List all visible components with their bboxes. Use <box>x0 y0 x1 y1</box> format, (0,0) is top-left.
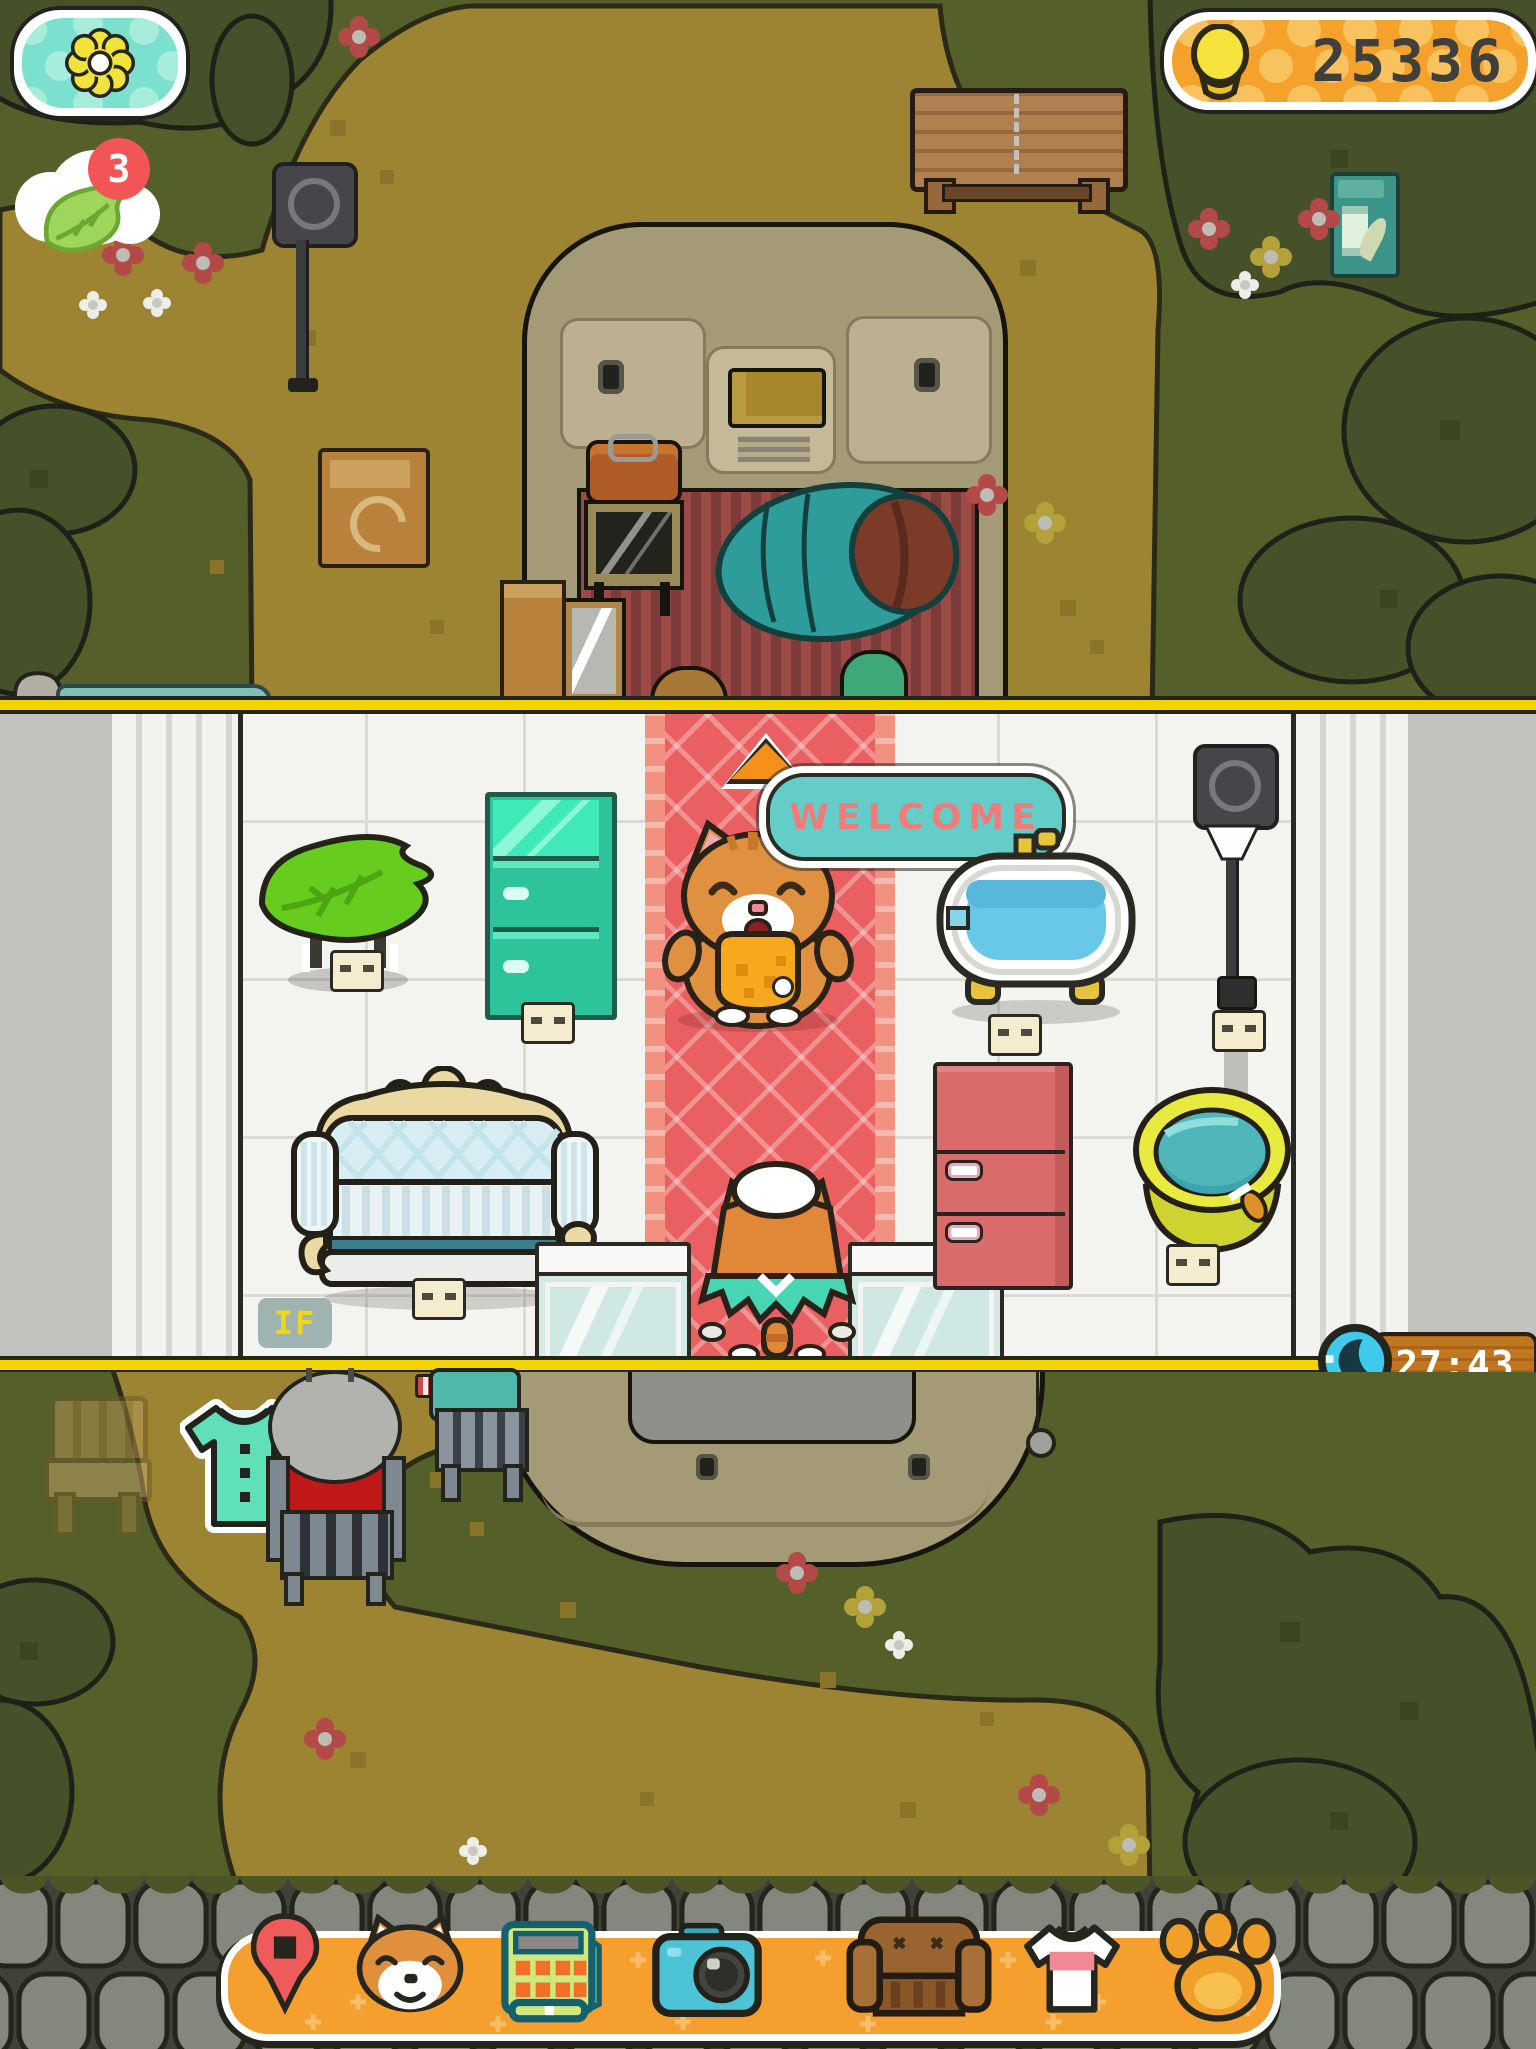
bobber-float <box>1026 1428 1056 1458</box>
chair-back <box>280 1510 394 1580</box>
divider-top <box>0 696 1536 716</box>
coin-icon <box>1186 24 1256 100</box>
shop-panel-left <box>112 714 238 1360</box>
paw-icon[interactable] <box>1150 1910 1286 2024</box>
chair-leg <box>366 1572 386 1606</box>
flower-red <box>352 30 366 44</box>
flower-yellow <box>1264 250 1278 264</box>
tshirt-icon[interactable] <box>1020 1920 1124 2017</box>
bench-crossbar <box>942 184 1092 202</box>
counter-glass <box>545 1282 681 1360</box>
ghost-chair <box>42 1396 147 1531</box>
flower-daisy <box>468 1846 478 1856</box>
cat-ear-mark <box>306 1368 312 1382</box>
camper-window <box>728 368 826 428</box>
flower-red <box>1202 222 1216 236</box>
fridge-handle <box>945 1222 983 1243</box>
flower-icon <box>62 24 138 102</box>
camper-panel-left <box>560 318 706 449</box>
leaf-notification[interactable]: 3 <box>14 132 174 252</box>
mirror-glass <box>572 608 616 694</box>
flower-button[interactable] <box>10 6 190 120</box>
camper-bumper <box>628 1372 916 1444</box>
flower-yellow <box>1038 516 1052 530</box>
fridge-top-door <box>493 800 599 861</box>
grass-fringe <box>0 1876 1536 1900</box>
notification-badge: 3 <box>88 138 150 200</box>
bench-seat <box>910 88 1128 192</box>
flower-red <box>980 488 994 502</box>
camera-icon[interactable] <box>652 1922 762 2017</box>
lamp-shade <box>1203 824 1261 862</box>
teal-fridge[interactable] <box>485 792 617 1020</box>
pink-fridge[interactable] <box>933 1062 1073 1290</box>
flower-daisy <box>894 1640 904 1650</box>
flower-daisy <box>88 300 98 310</box>
ghost-chair-leg <box>118 1492 140 1536</box>
chair-leg <box>441 1464 461 1502</box>
bathtub[interactable] <box>928 828 1144 1028</box>
cardboard-box-small[interactable] <box>500 580 566 704</box>
flower-red <box>318 1732 332 1746</box>
fishing-line <box>1036 1372 1039 1430</box>
flower-red <box>196 256 210 270</box>
price-tag <box>1166 1244 1220 1286</box>
lamp-post-head <box>272 162 358 248</box>
bubble-puff <box>772 976 794 998</box>
fridge-handle <box>503 960 529 973</box>
bench-seam <box>1014 94 1019 174</box>
shop-wall-left <box>0 714 112 1360</box>
glasses-icon <box>608 434 658 462</box>
sleeping-bag <box>708 462 988 662</box>
tv-screen <box>584 500 684 590</box>
shop-panel-right <box>1296 714 1408 1360</box>
shop-interior: WELCOME <box>0 714 1536 1360</box>
npc-cat-on-chair[interactable] <box>258 1368 408 1600</box>
flower-yellow <box>1122 1838 1136 1852</box>
shiba-icon[interactable] <box>350 1914 470 2015</box>
price-tag <box>1212 1010 1266 1052</box>
bottom-toolbar <box>222 1898 1284 2049</box>
tv-cart-leg <box>660 582 670 616</box>
cardboard-box[interactable] <box>318 448 430 568</box>
chair-leg <box>284 1572 304 1606</box>
flower-red <box>1032 1788 1046 1802</box>
chair-leg <box>503 1464 523 1502</box>
fridge-divider <box>933 1150 1065 1154</box>
box-swirl-icon <box>339 485 418 564</box>
cat-ear-mark <box>348 1368 354 1382</box>
doormat: IF <box>258 1298 332 1348</box>
price-tag <box>330 950 384 992</box>
glass-counter-left[interactable] <box>535 1242 691 1360</box>
shop-wall-right <box>1408 714 1536 1360</box>
fridge-drawer <box>493 932 599 1002</box>
counter-top <box>539 1246 687 1276</box>
coin-value: 25336 <box>1311 27 1506 95</box>
flower-daisy <box>1240 280 1250 290</box>
game-screen: 25336 3 413/100 <box>0 0 1536 2049</box>
fridge-drawer <box>493 861 599 932</box>
fridge-divider <box>933 1212 1065 1216</box>
newspaper-box-top <box>1338 180 1384 198</box>
npc-chair[interactable] <box>415 1368 535 1498</box>
box-panel <box>330 460 410 488</box>
tv-glass <box>596 512 672 574</box>
camper-knob <box>908 1454 930 1480</box>
camper-knob <box>696 1454 718 1480</box>
shop-lamp-pole <box>1226 860 1239 978</box>
ghost-chair-leg <box>54 1492 76 1536</box>
fridge-handle <box>945 1160 983 1181</box>
camper-knob <box>598 360 624 394</box>
mirror[interactable] <box>562 598 626 704</box>
price-tag <box>988 1014 1042 1056</box>
coin-counter[interactable]: 25336 <box>1160 8 1536 114</box>
newspaper-box[interactable] <box>1330 172 1400 278</box>
flower-yellow <box>858 1600 872 1614</box>
armchair-icon[interactable] <box>846 1916 992 2017</box>
cash-register-icon[interactable] <box>494 1910 610 2026</box>
price-tag <box>412 1278 466 1320</box>
camper-vents <box>738 436 810 462</box>
doormat-text: IF <box>274 1304 317 1342</box>
visitor-cat[interactable] <box>692 1160 862 1360</box>
shop-lamp-head <box>1193 744 1279 830</box>
lamp-post-base <box>288 378 318 392</box>
price-tag <box>521 1002 575 1044</box>
bench[interactable] <box>910 70 1118 200</box>
lamp-post-pole <box>296 240 309 380</box>
flower-daisy <box>152 298 162 308</box>
camper-hood-line <box>540 1482 990 1527</box>
flower-red <box>790 1566 804 1580</box>
map-pin-icon[interactable] <box>248 1912 322 2020</box>
chair-back <box>435 1408 529 1472</box>
counter-glass <box>858 1282 994 1360</box>
fridge-handle <box>503 887 529 900</box>
shop-lamp-base <box>1217 976 1257 1010</box>
camper-knob <box>914 358 940 392</box>
flower-red <box>1312 212 1326 226</box>
